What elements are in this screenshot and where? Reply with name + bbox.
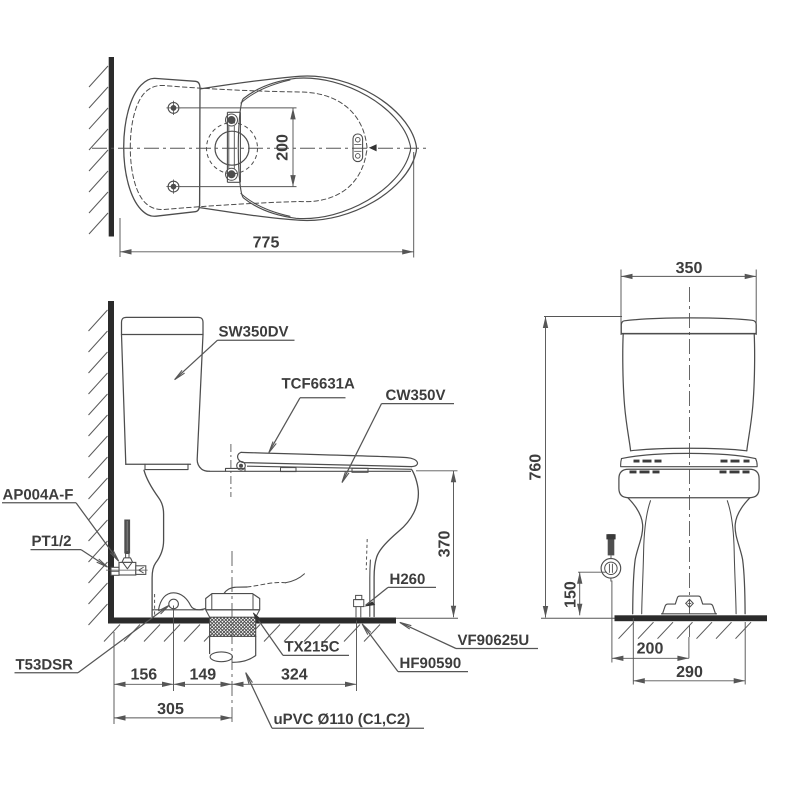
svg-text:TCF6631A: TCF6631A	[282, 375, 356, 392]
svg-text:PT1/2: PT1/2	[32, 533, 72, 550]
svg-text:200: 200	[637, 640, 664, 657]
svg-text:200: 200	[275, 134, 292, 161]
svg-text:CW350V: CW350V	[386, 387, 446, 404]
svg-text:290: 290	[676, 664, 703, 681]
svg-text:VF90625U: VF90625U	[458, 632, 530, 649]
svg-text:350: 350	[676, 260, 703, 277]
svg-text:SW350DV: SW350DV	[219, 324, 289, 341]
svg-text:AP004A-F: AP004A-F	[3, 486, 74, 503]
svg-text:uPVC Ø110 (C1,C2): uPVC Ø110 (C1,C2)	[274, 711, 411, 728]
svg-text:H260: H260	[390, 571, 426, 588]
svg-text:305: 305	[157, 701, 184, 718]
svg-text:370: 370	[436, 531, 453, 558]
svg-text:156: 156	[130, 667, 157, 684]
svg-text:324: 324	[281, 667, 308, 684]
svg-text:T53DSR: T53DSR	[16, 656, 74, 673]
svg-text:HF90590: HF90590	[400, 655, 462, 672]
svg-text:150: 150	[563, 581, 580, 608]
svg-text:760: 760	[528, 454, 545, 481]
svg-text:775: 775	[253, 235, 280, 252]
svg-text:149: 149	[189, 667, 216, 684]
svg-text:TX215C: TX215C	[285, 639, 340, 656]
